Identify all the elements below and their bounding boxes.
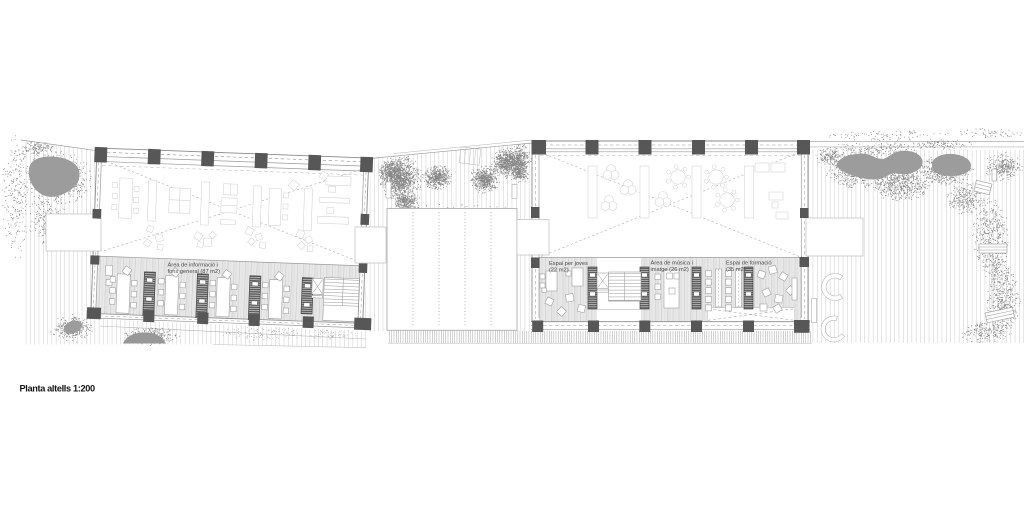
svg-text:imatge (26 m2): imatge (26 m2) <box>651 267 689 273</box>
svg-text:(22 m2): (22 m2) <box>549 268 569 274</box>
svg-text:Espai per joves: Espai per joves <box>549 261 588 267</box>
svg-text:Planta altells 1:200: Planta altells 1:200 <box>20 384 95 394</box>
svg-text:fons general (87 m2): fons general (87 m2) <box>168 269 221 275</box>
svg-text:Espai de formació: Espai de formació <box>726 261 772 267</box>
svg-text:(35 m2): (35 m2) <box>726 267 746 273</box>
svg-text:Àrea de informació i: Àrea de informació i <box>168 262 219 269</box>
svg-text:Àrea de música i: Àrea de música i <box>651 260 693 267</box>
